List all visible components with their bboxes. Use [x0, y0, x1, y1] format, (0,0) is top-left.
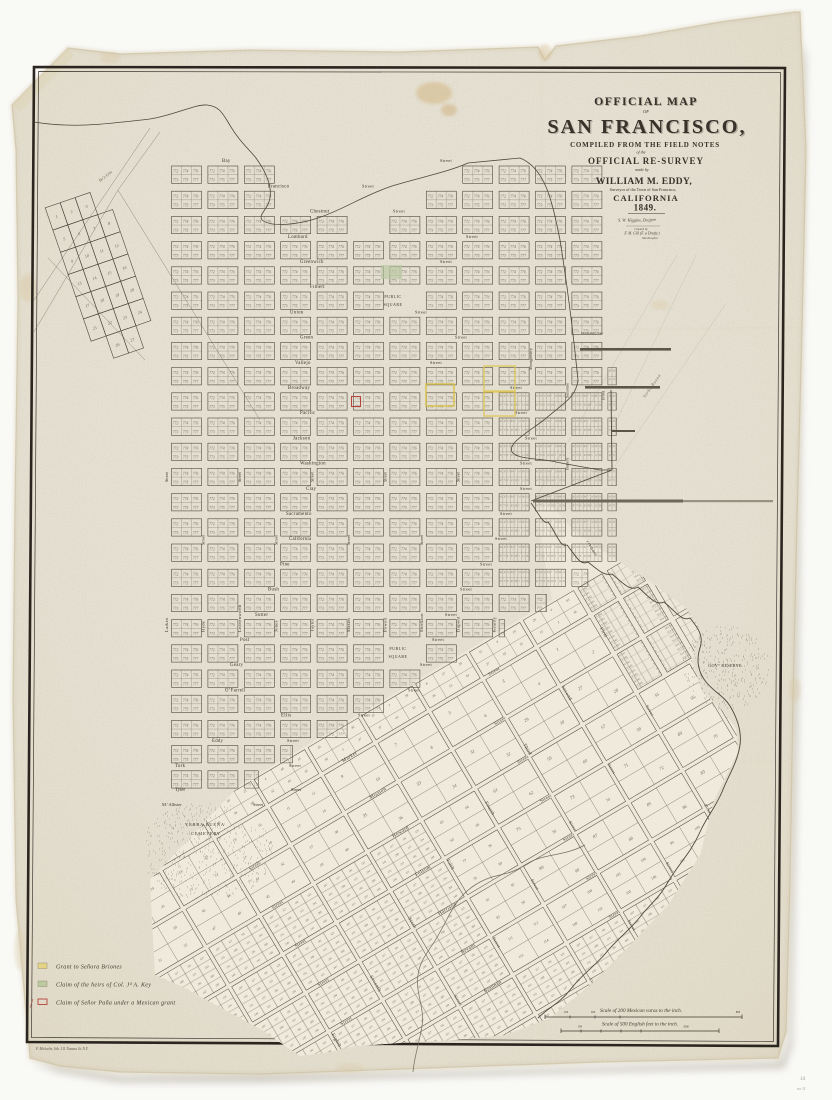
svg-text:WILLIAM M. EDDY,: WILLIAM M. EDDY, — [596, 177, 693, 187]
svg-text:GOVᵀ RESERVE: GOVᵀ RESERVE — [708, 663, 742, 668]
svg-text:Vallejo: Vallejo — [295, 361, 311, 366]
svg-text:F. M. Gill (F. a Draftsʳ): F. M. Gill (F. a Draftsʳ) — [623, 232, 660, 236]
svg-text:OFFICIAL MAP: OFFICIAL MAP — [594, 94, 698, 108]
svg-text:Street: Street — [408, 687, 421, 692]
svg-text:Taylor: Taylor — [310, 618, 315, 632]
svg-text:PUBLIC: PUBLIC — [384, 294, 401, 299]
svg-text:YERBA BUENA: YERBA BUENA — [185, 822, 225, 827]
svg-text:Geary: Geary — [230, 663, 244, 668]
svg-text:OFFICIAL RE-SURVEY: OFFICIAL RE-SURVEY — [588, 156, 704, 166]
svg-text:Green: Green — [300, 336, 314, 341]
svg-text:Street: Street — [512, 1093, 523, 1100]
svg-text:800: 800 — [736, 1011, 741, 1014]
svg-text:1849.: 1849. — [634, 203, 657, 213]
svg-text:Larkin: Larkin — [164, 618, 169, 632]
svg-text:Street: Street — [520, 461, 533, 466]
svg-text:Scale of 200 Mexican varas to: Scale of 200 Mexican varas to the inch. — [600, 1007, 682, 1014]
svg-text:Claim of the heirs of Col. Jᵈ: Claim of the heirs of Col. Jᵈ A. Key — [56, 982, 151, 989]
svg-text:Washington: Washington — [642, 236, 658, 240]
svg-text:Street: Street — [500, 511, 513, 516]
svg-text:Street: Street — [480, 561, 493, 566]
svg-text:Lombard: Lombard — [288, 235, 308, 240]
svg-text:Bush: Bush — [268, 588, 279, 593]
svg-text:14: 14 — [800, 1077, 806, 1082]
svg-text:Street: Street — [510, 385, 523, 390]
svg-text:COMPILED FROM THE FIELD NOTES: COMPILED FROM THE FIELD NOTES — [570, 141, 720, 149]
svg-text:Claim of Señor Paña under a Me: Claim of Señor Paña under a Mexican gran… — [56, 1000, 175, 1007]
svg-text:Jackson: Jackson — [293, 436, 311, 441]
svg-text:500: 500 — [578, 1026, 583, 1029]
svg-text:Mason: Mason — [346, 618, 351, 632]
svg-text:Ellis: Ellis — [281, 714, 291, 719]
svg-text:Street: Street — [520, 486, 533, 491]
svg-text:Eddy: Eddy — [212, 739, 224, 744]
svg-text:Union: Union — [290, 310, 304, 315]
svg-text:Turk: Turk — [175, 764, 186, 769]
svg-text:CALIFORNIA: CALIFORNIA — [613, 193, 678, 203]
svg-text:Street: Street — [362, 183, 375, 188]
svg-text:Street: Street — [440, 259, 453, 264]
svg-text:Street: Street — [466, 234, 479, 239]
svg-text:Street: Street — [287, 738, 300, 743]
svg-text:Post: Post — [240, 638, 250, 643]
svg-text:2000: 2000 — [683, 1026, 689, 1029]
svg-text:Broadway: Broadway — [288, 386, 310, 391]
svg-text:Filbert: Filbert — [310, 285, 325, 290]
svg-text:Street: Street — [440, 158, 453, 163]
svg-text:Street: Street — [291, 787, 302, 792]
svg-text:Street: Street — [383, 471, 388, 482]
svg-text:Sansome: Sansome — [564, 383, 569, 398]
svg-text:Sacramento: Sacramento — [286, 512, 312, 517]
svg-text:Hyde: Hyde — [201, 621, 206, 632]
svg-text:Street: Street — [455, 335, 468, 340]
svg-text:Street: Street — [310, 471, 315, 482]
svg-text:Front: Front — [601, 390, 606, 400]
svg-text:Powell: Powell — [383, 617, 388, 632]
svg-text:Street: Street — [253, 802, 264, 807]
svg-text:Street: Street — [455, 471, 460, 482]
svg-text:made by: made by — [635, 167, 649, 172]
svg-text:Tyler: Tyler — [175, 788, 185, 793]
svg-text:Jones: Jones — [273, 620, 278, 632]
svg-text:Clay: Clay — [306, 487, 317, 492]
svg-text:CEMETERY: CEMETERY — [191, 831, 221, 836]
svg-text:Chestnut: Chestnut — [310, 210, 330, 215]
svg-text:Grant to Señora Briones: Grant to Señora Briones — [56, 965, 122, 971]
svg-text:Montgomery: Montgomery — [528, 347, 533, 370]
svg-text:Street: Street — [430, 360, 443, 365]
svg-text:Street: Street — [415, 309, 428, 314]
svg-text:Montgomery Park: Montgomery Park — [581, 331, 603, 335]
svg-text:SQUARE: SQUARE — [388, 654, 407, 659]
svg-text:Street: Street — [420, 662, 433, 667]
svg-text:Street: Street — [201, 534, 206, 545]
svg-text:Street: Street — [445, 612, 458, 617]
svg-text:100: 100 — [564, 1011, 569, 1014]
svg-text:Street: Street — [164, 471, 169, 482]
svg-text:California: California — [289, 537, 312, 542]
svg-text:Street: Street — [393, 209, 406, 214]
svg-text:M.’Allister: M.’Allister — [162, 802, 182, 807]
svg-text:Street: Street — [273, 534, 278, 545]
svg-text:Street: Street — [237, 471, 242, 482]
svg-text:Leavenworth: Leavenworth — [237, 604, 242, 632]
svg-text:Sutter: Sutter — [255, 613, 268, 618]
svg-text:Street: Street — [515, 410, 528, 415]
svg-text:Street: Street — [460, 587, 473, 592]
svg-text:Dupont: Dupont — [455, 616, 460, 632]
svg-text:Street: Street — [358, 713, 371, 718]
svg-text:Copied by: Copied by — [634, 227, 648, 231]
svg-text:Washington: Washington — [300, 462, 326, 467]
svg-text:Greenwich: Greenwich — [300, 260, 324, 265]
svg-text:SQUARE: SQUARE — [383, 302, 402, 307]
svg-text:Bay: Bay — [222, 159, 231, 164]
svg-text:Street: Street — [346, 534, 351, 545]
svg-text:Street: Street — [289, 763, 302, 768]
svg-text:O’Farrell: O’Farrell — [225, 688, 246, 693]
svg-text:200: 200 — [591, 1011, 596, 1014]
svg-text:Francisco: Francisco — [268, 184, 290, 189]
svg-text:Stockton: Stockton — [419, 613, 424, 632]
svg-text:SAN FRANCISCO,: SAN FRANCISCO, — [547, 116, 746, 138]
svg-text:of the: of the — [637, 150, 646, 155]
svg-text:PUBLIC: PUBLIC — [389, 646, 406, 651]
svg-text:Scale of 500 English feet to t: Scale of 500 English feet to the inch. — [602, 1021, 678, 1028]
svg-text:Kearny: Kearny — [492, 616, 497, 632]
svg-text:OF: OF — [643, 109, 649, 114]
svg-text:Pine: Pine — [280, 562, 290, 567]
svg-text:Street: Street — [419, 534, 424, 545]
svg-text:Street: Street — [525, 435, 538, 440]
svg-text:Street: Street — [495, 536, 508, 541]
svg-text:Pacific: Pacific — [300, 411, 315, 416]
svg-text:Street: Street — [432, 637, 445, 642]
svg-text:no 11: no 11 — [797, 1086, 806, 1091]
